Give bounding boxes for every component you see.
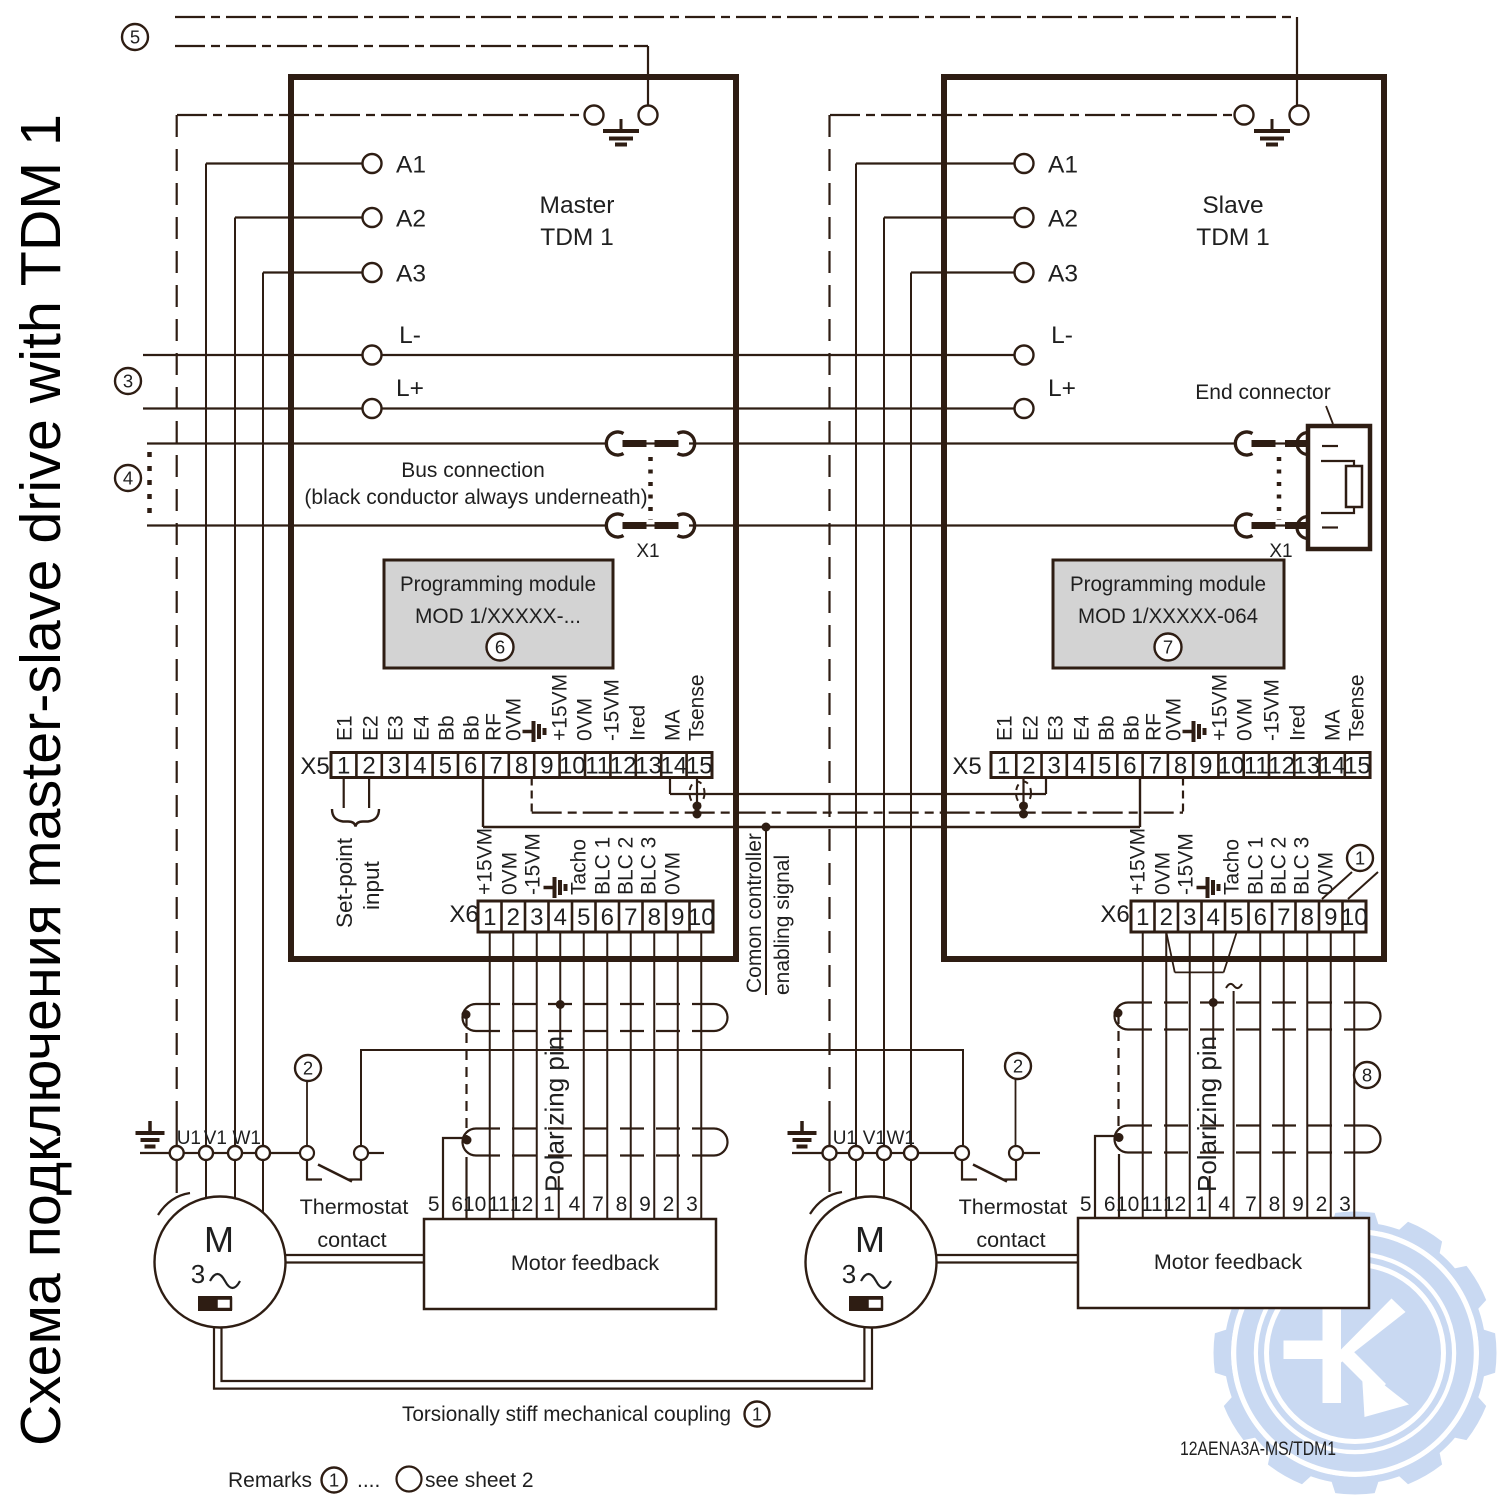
svg-text:input: input [359,860,384,910]
svg-text:-15VM: -15VM [522,833,545,895]
svg-text:15: 15 [686,753,713,780]
svg-text:W1: W1 [887,1128,916,1149]
svg-text:X6: X6 [449,901,478,928]
svg-text:E4: E4 [411,715,434,741]
svg-text:-15VM: -15VM [1261,679,1284,741]
svg-text:L-: L- [1051,322,1073,349]
svg-text:Motor feedback: Motor feedback [511,1251,659,1275]
svg-text:L-: L- [399,322,421,349]
svg-text:1: 1 [329,1469,339,1490]
svg-text:Tsense: Tsense [686,674,709,741]
svg-text:10: 10 [1341,904,1368,931]
svg-text:MA: MA [662,710,685,742]
svg-text:10: 10 [463,1193,486,1216]
svg-text:0VM: 0VM [662,852,685,895]
svg-text:12: 12 [1163,1193,1186,1216]
svg-text:A1: A1 [396,152,426,179]
svg-text:1: 1 [1136,904,1149,931]
svg-text:10: 10 [688,904,715,931]
svg-text:10: 10 [1116,1193,1139,1216]
svg-text:TDM 1: TDM 1 [540,224,614,251]
svg-text:3: 3 [388,753,401,780]
svg-text:7: 7 [624,904,637,931]
svg-text:End connector: End connector [1195,381,1330,404]
svg-text:5: 5 [1098,753,1111,780]
svg-text:0VM: 0VM [574,698,597,741]
svg-text:12: 12 [1268,753,1295,780]
svg-text:X1: X1 [636,541,659,562]
svg-text:contact: contact [976,1228,1045,1252]
svg-text:3: 3 [686,1193,698,1216]
svg-text:Remarks: Remarks [228,1469,312,1492]
svg-text:M: M [855,1219,885,1260]
svg-text:6: 6 [451,1193,463,1216]
svg-text:8: 8 [648,904,661,931]
svg-text:V1: V1 [204,1128,227,1149]
svg-text:BLC 2: BLC 2 [615,837,638,895]
svg-text:2: 2 [1316,1193,1328,1216]
svg-text:8: 8 [616,1193,628,1216]
svg-text:M: M [204,1219,234,1260]
svg-text:see sheet 2: see sheet 2 [425,1469,534,1492]
svg-text:E3: E3 [1045,715,1068,741]
svg-text:enabling signal: enabling signal [771,855,794,995]
svg-text:MOD 1/XXXXX-064: MOD 1/XXXXX-064 [1078,604,1258,628]
svg-text:4: 4 [1218,1193,1230,1216]
svg-text:Motor feedback: Motor feedback [1154,1250,1302,1274]
svg-text:MA: MA [1322,710,1345,742]
svg-text:BLC 3: BLC 3 [1291,837,1314,895]
svg-text:Bus connection: Bus connection [401,459,545,482]
svg-text:Bb: Bb [1121,715,1144,741]
svg-text:L+: L+ [1048,375,1076,402]
svg-text:8: 8 [1269,1193,1281,1216]
svg-text:Ired: Ired [627,705,650,741]
svg-text:9: 9 [1199,753,1212,780]
svg-text:12: 12 [610,753,637,780]
svg-text:U1: U1 [177,1128,201,1149]
svg-text:10: 10 [1218,753,1245,780]
svg-text:11: 11 [1244,753,1269,780]
svg-text:9: 9 [1292,1193,1304,1216]
svg-text:11: 11 [1141,1193,1163,1216]
svg-text:X6: X6 [1100,901,1129,928]
svg-text:Torsionally stiff mechanical c: Torsionally stiff mechanical coupling [402,1403,731,1426]
svg-text:2: 2 [1160,904,1173,931]
svg-text:Tacho: Tacho [1221,839,1244,895]
svg-text:X5: X5 [952,753,981,780]
svg-text:9: 9 [671,904,684,931]
svg-text:A2: A2 [396,206,426,233]
svg-text:6: 6 [1123,753,1136,780]
svg-text:10: 10 [559,753,586,780]
svg-text:BLC 3: BLC 3 [638,837,661,895]
svg-text:X5: X5 [300,753,329,780]
svg-text:3: 3 [123,370,133,391]
svg-text:Slave: Slave [1202,192,1263,219]
svg-text:4: 4 [413,753,426,780]
svg-text:A1: A1 [1048,152,1078,179]
svg-text:3: 3 [191,1259,205,1289]
svg-text:11: 11 [488,1193,510,1216]
svg-text:7: 7 [592,1193,604,1216]
svg-text:A2: A2 [1048,206,1078,233]
svg-text:....: .... [357,1469,380,1492]
svg-text:4: 4 [1073,753,1086,780]
svg-text:(black conductor always undern: (black conductor always underneath) [304,486,647,509]
svg-text:1: 1 [543,1193,555,1216]
svg-text:Bb: Bb [461,715,484,741]
svg-text:2: 2 [362,753,375,780]
svg-text:9: 9 [540,753,553,780]
svg-text:E2: E2 [1020,715,1043,741]
svg-text:2: 2 [1013,1055,1023,1076]
svg-text:3: 3 [530,904,543,931]
svg-text:1: 1 [752,1403,762,1424]
svg-text:A3: A3 [1048,261,1078,288]
svg-text:+15VM: +15VM [1209,674,1232,741]
svg-text:Programming module: Programming module [1070,572,1266,596]
svg-text:+15VM: +15VM [549,674,572,741]
svg-text:7: 7 [1245,1193,1257,1216]
svg-text:+15VM: +15VM [474,828,497,895]
svg-text:1: 1 [1355,847,1365,868]
svg-text:E4: E4 [1071,715,1094,741]
svg-text:Bb: Bb [1096,715,1119,741]
svg-text:14: 14 [1319,753,1346,780]
svg-text:6: 6 [464,753,477,780]
svg-text:BLC 2: BLC 2 [1268,837,1291,895]
svg-text:-15VM: -15VM [601,679,624,741]
svg-text:0VM: 0VM [1152,852,1175,895]
svg-text:9: 9 [1324,904,1337,931]
svg-text:Ired: Ired [1287,705,1310,741]
svg-text:7: 7 [1149,753,1162,780]
svg-text:1: 1 [483,904,496,931]
svg-text:6: 6 [1254,904,1267,931]
svg-text:Схема подключения master-slave: Схема подключения master-slave drive wit… [9,114,73,1446]
svg-text:W1: W1 [233,1128,262,1149]
svg-text:6: 6 [1104,1193,1116,1216]
svg-text:8: 8 [515,753,528,780]
svg-text:Set-point: Set-point [332,837,357,928]
svg-text:U1: U1 [833,1128,857,1149]
svg-text:5: 5 [439,753,452,780]
svg-text:A3: A3 [396,261,426,288]
svg-text:6: 6 [495,636,505,657]
svg-text:2: 2 [303,1057,313,1078]
svg-text:Tsense: Tsense [1346,674,1369,741]
svg-text:4: 4 [1207,904,1220,931]
svg-text:BLC 1: BLC 1 [592,837,615,895]
svg-text:8: 8 [1301,904,1314,931]
svg-text:Polarizing pin: Polarizing pin [1192,1036,1222,1192]
svg-text:13: 13 [1294,753,1321,780]
svg-text:Master: Master [540,192,615,219]
svg-text:8: 8 [1174,753,1187,780]
svg-text:3: 3 [1047,753,1060,780]
svg-text:L+: L+ [396,375,424,402]
svg-text:Bb: Bb [436,715,459,741]
svg-text:2: 2 [663,1193,675,1216]
svg-text:V1: V1 [863,1128,886,1149]
svg-text:3: 3 [842,1259,856,1289]
svg-text:2: 2 [507,904,520,931]
svg-text:Thermostat: Thermostat [959,1195,1068,1219]
svg-text:8: 8 [1362,1064,1372,1085]
svg-text:Polarizing pin: Polarizing pin [540,1036,570,1192]
svg-text:1: 1 [1196,1193,1208,1216]
svg-text:15: 15 [1344,753,1371,780]
svg-text:Tacho: Tacho [568,839,591,895]
svg-text:+15VM: +15VM [1127,828,1150,895]
svg-text:5: 5 [577,904,590,931]
svg-text:2: 2 [1022,753,1035,780]
svg-text:6: 6 [601,904,614,931]
svg-text:MOD 1/XXXXX-...: MOD 1/XXXXX-... [415,604,581,628]
svg-text:4: 4 [554,904,567,931]
svg-text:E3: E3 [385,715,408,741]
svg-text:9: 9 [639,1193,651,1216]
svg-text:BLC 1: BLC 1 [1245,837,1268,895]
svg-text:4: 4 [123,467,133,488]
svg-text:7: 7 [1163,636,1173,657]
svg-text:E1: E1 [334,715,357,741]
svg-text:5: 5 [1230,904,1243,931]
svg-text:Comon controller: Comon controller [743,833,766,993]
svg-text:3: 3 [1339,1193,1351,1216]
svg-text:-15VM: -15VM [1175,833,1198,895]
svg-text:7: 7 [1277,904,1290,931]
svg-text:5: 5 [1080,1193,1092,1216]
svg-text:E2: E2 [360,715,383,741]
svg-text:1: 1 [337,753,350,780]
svg-text:12: 12 [510,1193,533,1216]
svg-text:11: 11 [585,753,610,780]
svg-text:5: 5 [428,1193,440,1216]
svg-text:Programming module: Programming module [400,572,596,596]
svg-text:4: 4 [569,1193,581,1216]
svg-text:Thermostat: Thermostat [300,1195,409,1219]
svg-text:5: 5 [130,26,140,47]
svg-text:0VM: 0VM [1163,698,1186,741]
svg-text:3: 3 [1183,904,1196,931]
svg-text:0VM: 0VM [503,698,526,741]
svg-text:7: 7 [489,753,502,780]
svg-text:1: 1 [997,753,1010,780]
svg-text:12AENA3A-MS/TDM1: 12AENA3A-MS/TDM1 [1180,1439,1336,1460]
svg-text:14: 14 [661,753,688,780]
svg-text:TDM 1: TDM 1 [1196,224,1270,251]
svg-text:0VM: 0VM [1234,698,1257,741]
svg-text:0VM: 0VM [499,852,522,895]
svg-text:contact: contact [317,1228,386,1252]
svg-text:13: 13 [635,753,662,780]
svg-text:E1: E1 [994,715,1017,741]
